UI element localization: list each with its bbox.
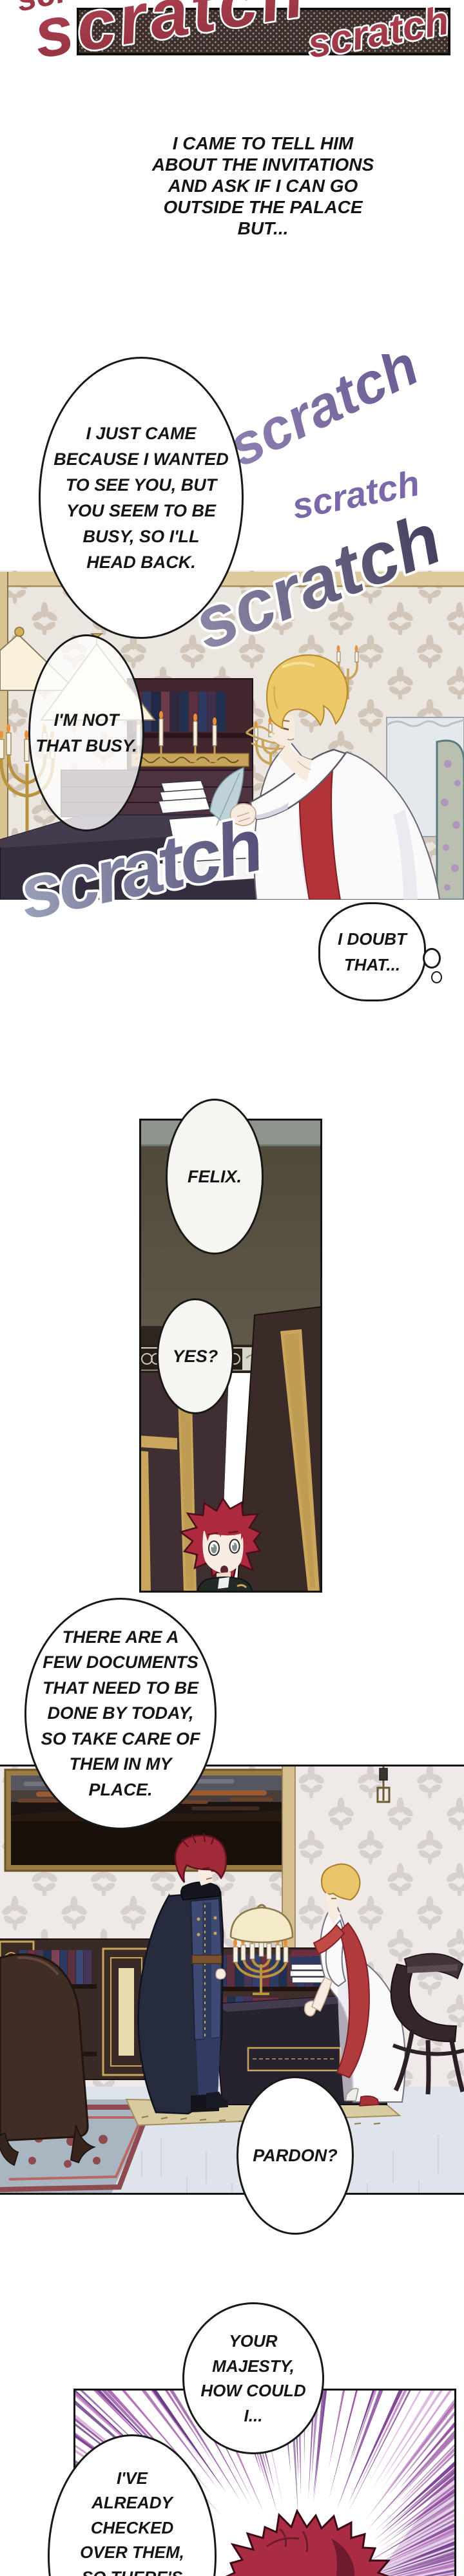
svg-text:scratch: scratch: [28, 0, 312, 73]
svg-text:scratch: scratch: [12, 803, 267, 936]
svg-text:scratch: scratch: [218, 354, 428, 478]
svg-text:scratch: scratch: [304, 0, 452, 67]
